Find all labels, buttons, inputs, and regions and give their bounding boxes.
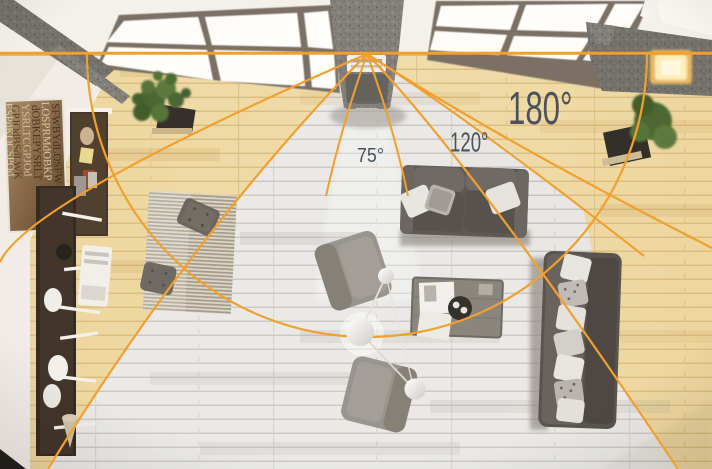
- svg-text:75°: 75°: [357, 145, 384, 167]
- svg-text:180°: 180°: [508, 82, 573, 134]
- svg-text:120°: 120°: [450, 127, 489, 158]
